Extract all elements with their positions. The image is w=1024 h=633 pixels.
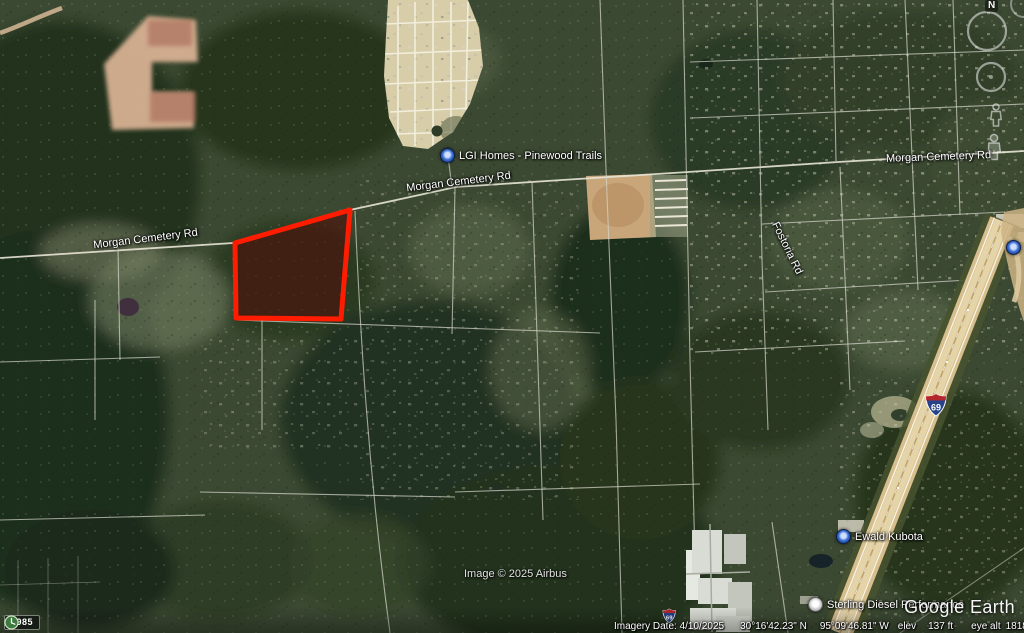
placemark-icon[interactable] (836, 529, 851, 544)
placemark-icon[interactable] (1006, 240, 1021, 255)
svg-text:69: 69 (931, 403, 941, 413)
elevation-value: 137 ft (928, 621, 953, 632)
eye-altitude-value: 18180 ft (1006, 621, 1024, 632)
eye-alt-label: eye alt (971, 621, 1000, 632)
placemark-label: Ewald Kubota (855, 531, 923, 543)
latitude-value: 30°16'42.23" N (740, 621, 807, 632)
placemark-label: LGI Homes - Pinewood Trails (459, 150, 602, 162)
imagery-date: Imagery Date: 4/10/2025 (614, 621, 724, 632)
map-viewport[interactable]: 69 69 Morgan Cemetery Rd Morgan Cemetery… (0, 0, 1024, 633)
compass-north-button[interactable]: N (985, 0, 998, 12)
historical-imagery-control[interactable]: 1985 (4, 615, 40, 630)
placemark-ewald-kubota[interactable]: Ewald Kubota (836, 529, 923, 544)
placemark-icon[interactable] (808, 597, 823, 612)
placemark-lgi-homes[interactable]: LGI Homes - Pinewood Trails (440, 148, 602, 163)
imagery-attribution: Image © 2025 Airbus (464, 568, 567, 580)
placemark-icon[interactable] (440, 148, 455, 163)
google-earth-logo: Google Earth (904, 597, 1015, 618)
longitude-value: 95°09'46.81" W (820, 621, 889, 632)
status-bar: Imagery Date: 4/10/2025 30°16'42.23" N 9… (614, 621, 1024, 632)
history-clock-icon[interactable] (4, 615, 19, 630)
elev-label: elev (898, 621, 916, 632)
placemark-cutoff-right-edge[interactable] (1006, 240, 1021, 255)
